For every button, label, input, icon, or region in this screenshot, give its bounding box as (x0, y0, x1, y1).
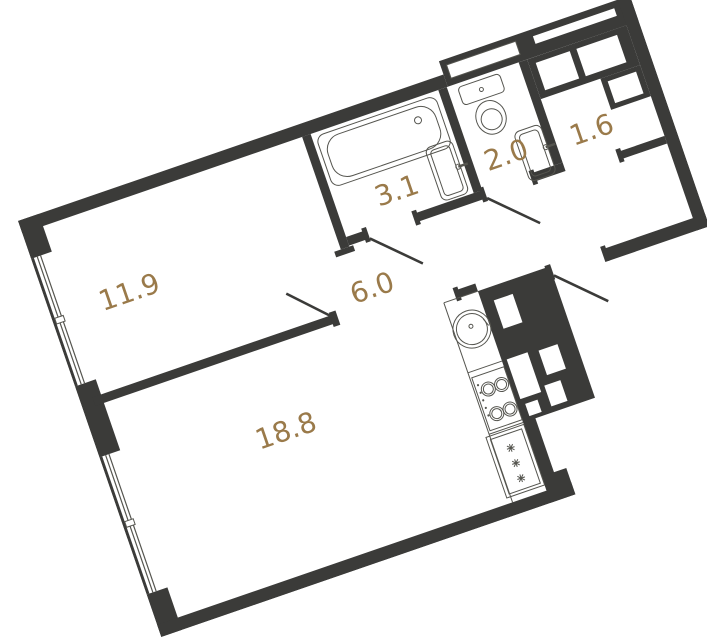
ventilation-shafts (405, 5, 707, 422)
label-bathroom-area: 3.1 (370, 168, 423, 214)
label-hallway-area: 6.0 (346, 265, 399, 311)
bathtub-drain (414, 116, 423, 125)
floor-plan-canvas: 11.9 18.8 6.0 3.1 2.0 1.6 (0, 0, 707, 640)
label-bedroom-area: 11.9 (94, 266, 164, 317)
room-labels: 11.9 18.8 6.0 3.1 2.0 1.6 (91, 101, 678, 490)
wc-door-leaf (487, 184, 540, 236)
label-wc-area: 2.0 (480, 132, 533, 178)
interior-walls (35, 25, 698, 434)
label-closet-area: 1.6 (565, 107, 618, 153)
floor-plan: 11.9 18.8 6.0 3.1 2.0 1.6 (18, 9, 707, 637)
window-living (99, 453, 158, 594)
snowflake-icon (506, 443, 516, 453)
toilet (458, 73, 518, 140)
bathtub (316, 95, 453, 187)
label-living-area: 18.8 (251, 405, 321, 456)
outer-walls (13, 0, 707, 637)
snowflake-icon (516, 473, 526, 483)
snowflake-icon (511, 458, 521, 468)
window-bedroom (31, 255, 86, 387)
